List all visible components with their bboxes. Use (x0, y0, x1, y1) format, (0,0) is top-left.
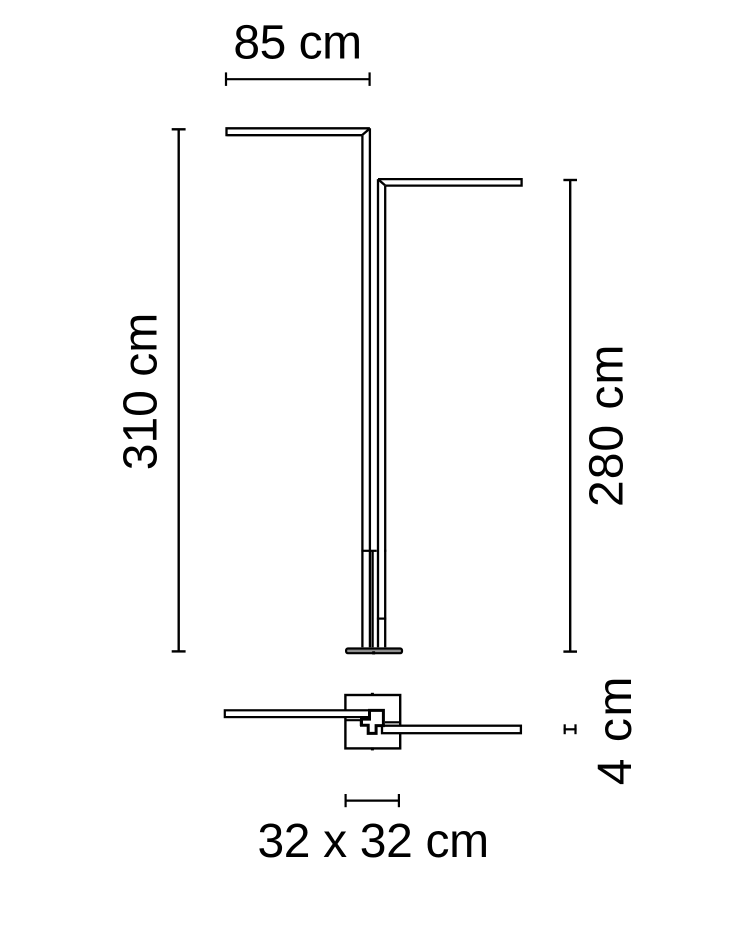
svg-text:310 cm: 310 cm (115, 313, 168, 470)
svg-text:280 cm: 280 cm (581, 344, 634, 507)
svg-text:85 cm: 85 cm (233, 17, 361, 70)
svg-text:32 x 32 cm: 32 x 32 cm (257, 815, 488, 868)
svg-text:4 cm: 4 cm (589, 675, 642, 785)
